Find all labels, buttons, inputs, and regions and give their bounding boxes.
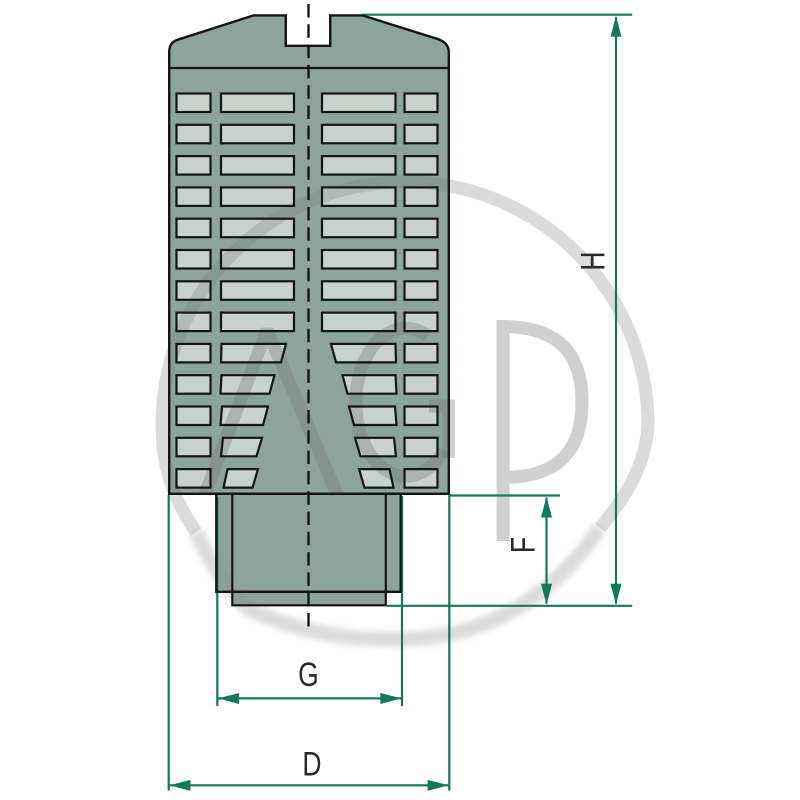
svg-text:G: G (298, 656, 319, 694)
svg-text:F: F (504, 537, 542, 553)
svg-text:D: D (302, 745, 321, 783)
svg-text:H: H (574, 251, 612, 270)
